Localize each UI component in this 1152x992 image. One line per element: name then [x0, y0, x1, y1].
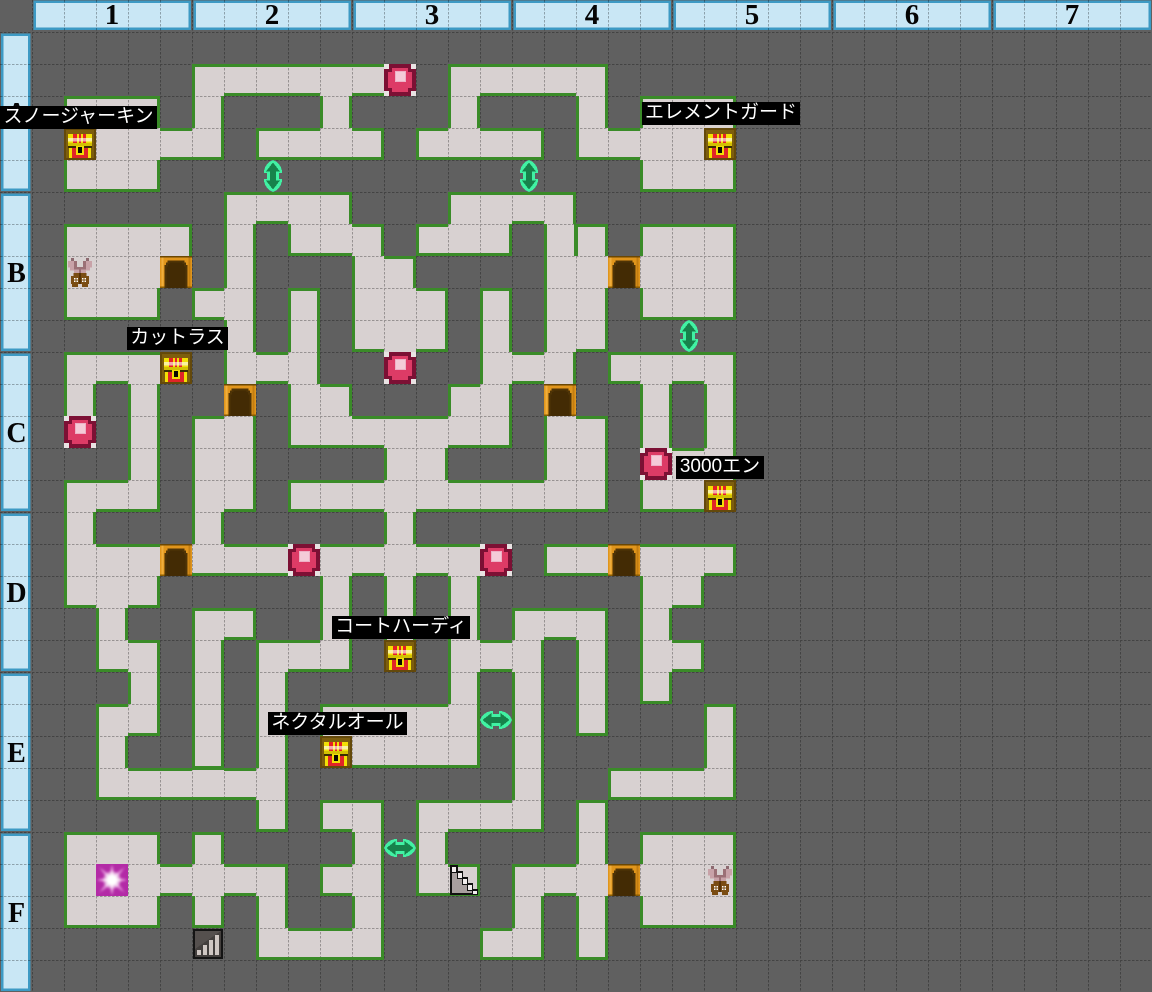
- svg-text:3: 3: [425, 0, 440, 31]
- svg-text:D: D: [6, 578, 26, 609]
- svg-text:6: 6: [905, 0, 920, 31]
- svg-text:2: 2: [265, 0, 280, 31]
- svg-text:1: 1: [105, 0, 120, 31]
- svg-text:C: C: [6, 418, 26, 449]
- svg-text:5: 5: [745, 0, 760, 31]
- svg-text:7: 7: [1065, 0, 1080, 31]
- svg-text:B: B: [7, 258, 26, 289]
- svg-text:F: F: [8, 898, 25, 929]
- svg-text:E: E: [7, 738, 26, 769]
- svg-text:4: 4: [585, 0, 600, 31]
